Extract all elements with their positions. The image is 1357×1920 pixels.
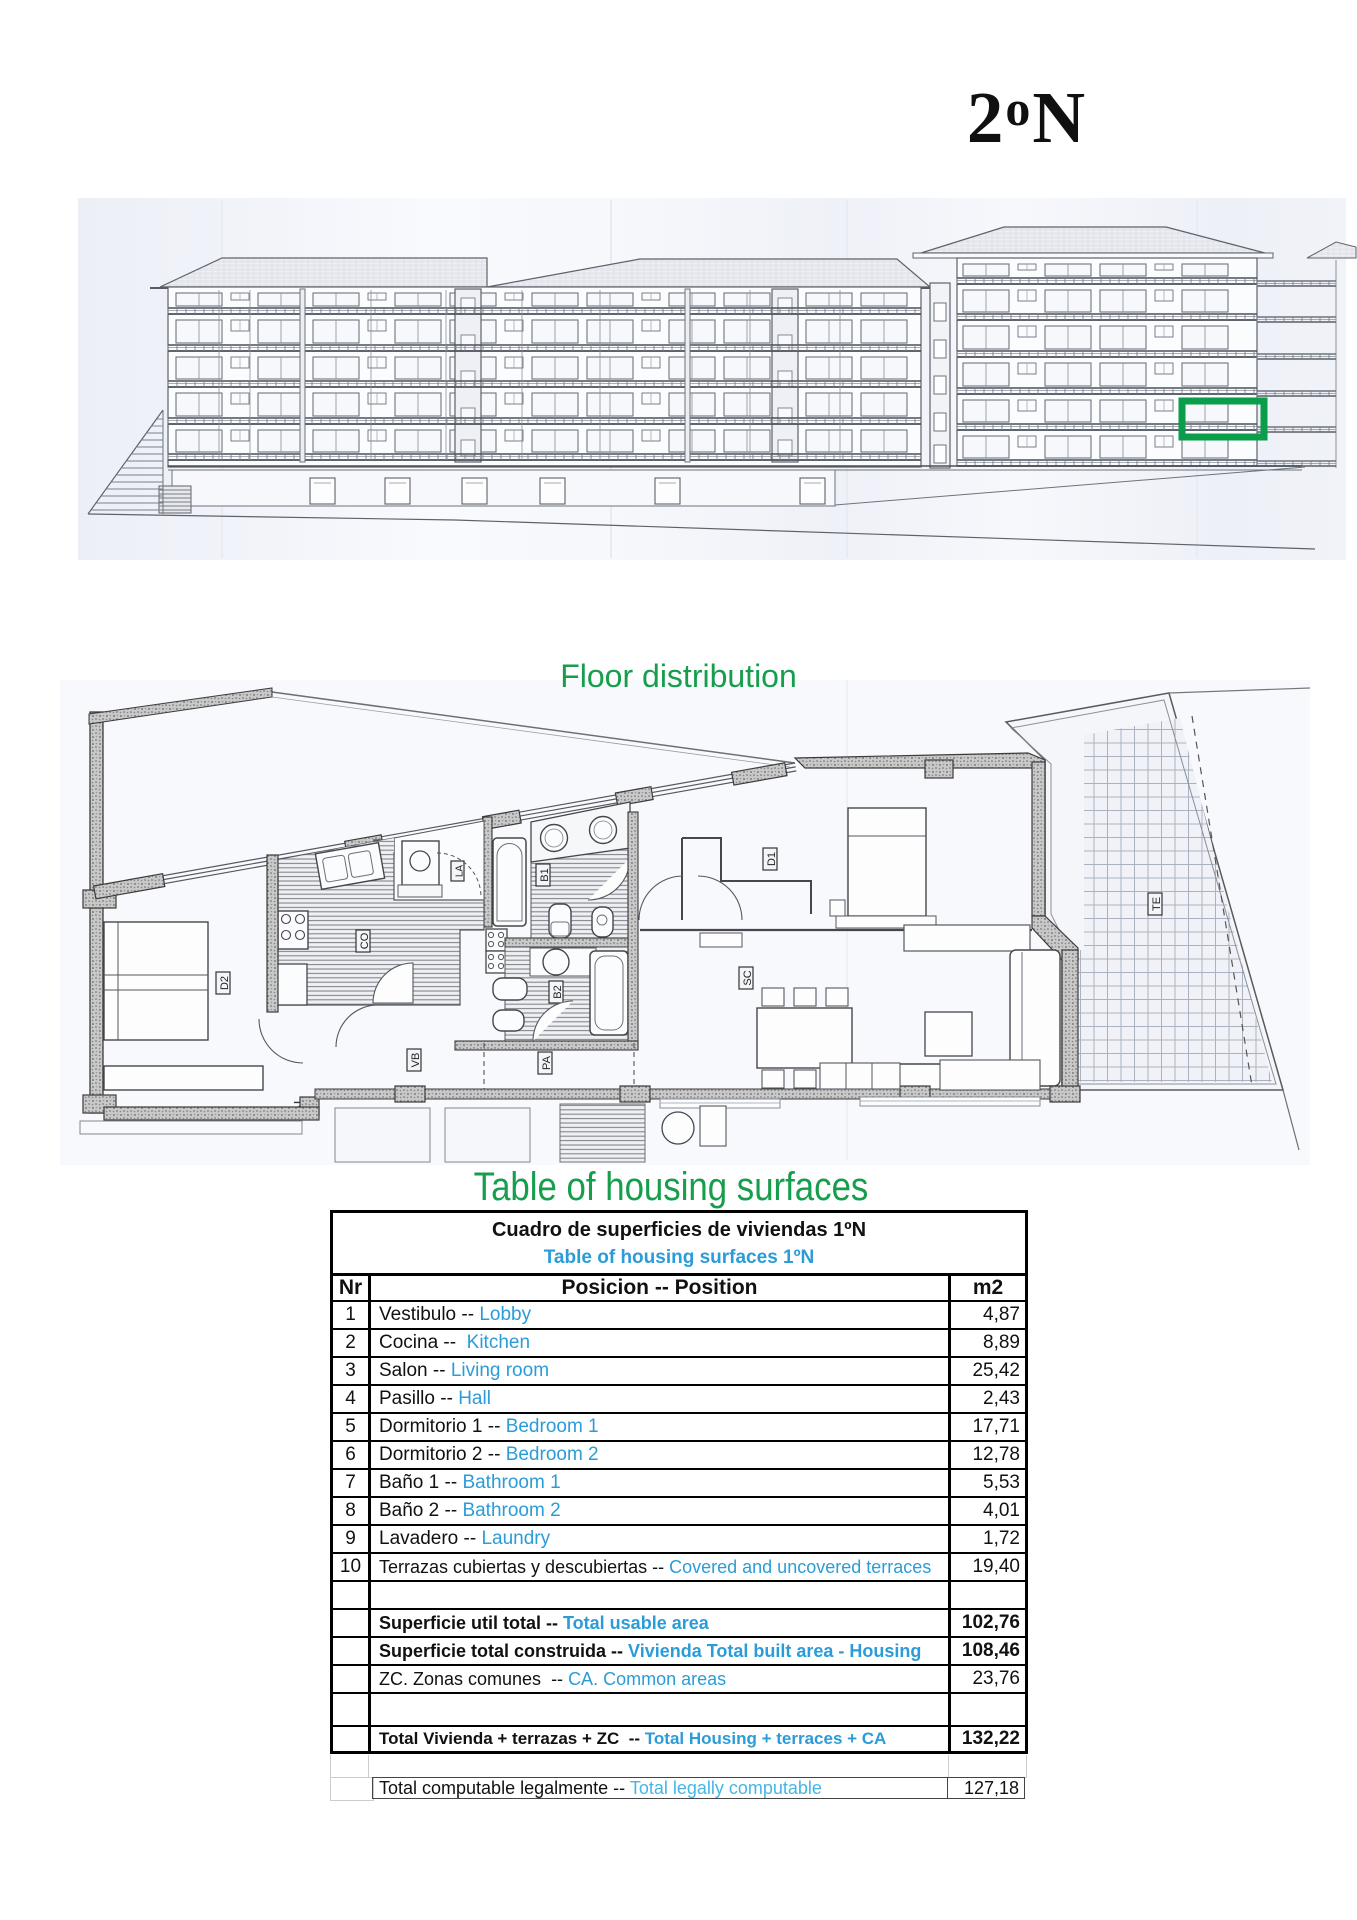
svg-text:LA: LA [455, 865, 466, 878]
svg-text:SC: SC [742, 970, 754, 985]
svg-text:B2: B2 [552, 985, 564, 998]
svg-text:D1: D1 [766, 852, 778, 866]
svg-text:CO: CO [359, 932, 371, 949]
svg-text:VB: VB [410, 1053, 422, 1068]
svg-text:D2: D2 [219, 976, 231, 990]
svg-text:TE: TE [1151, 897, 1163, 911]
svg-text:PA: PA [541, 1055, 553, 1070]
svg-text:B1: B1 [539, 868, 551, 881]
